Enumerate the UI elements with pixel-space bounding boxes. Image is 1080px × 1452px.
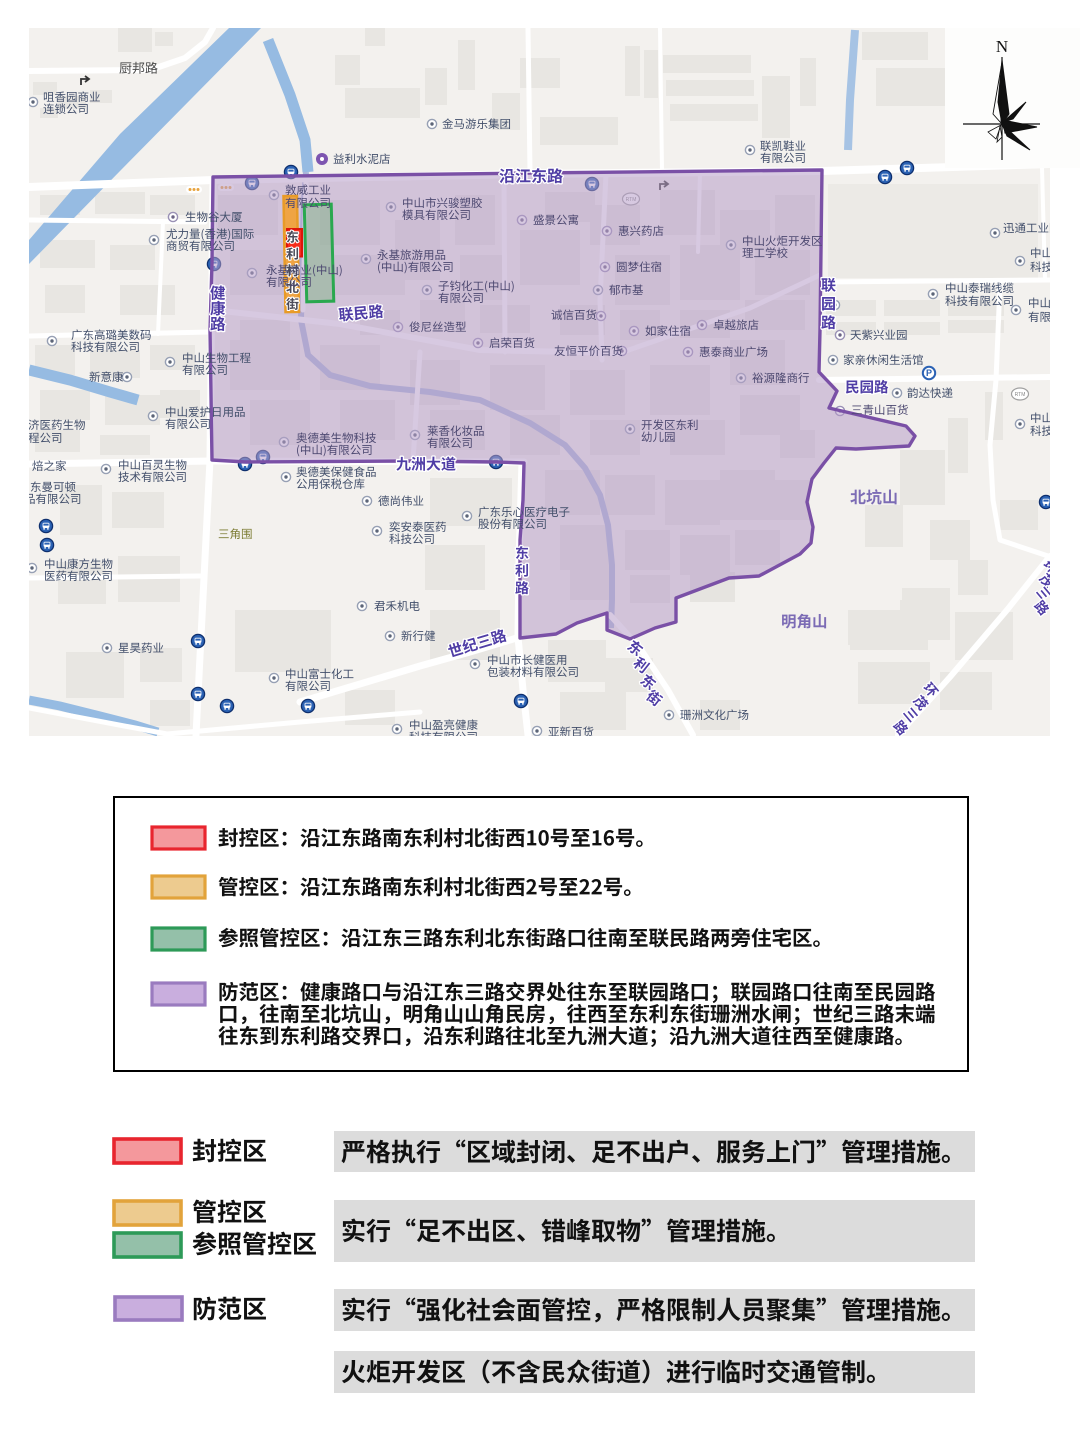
svg-text:N: N: [996, 37, 1008, 56]
svg-text:P: P: [926, 368, 932, 378]
svg-text:RTM: RTM: [1015, 392, 1026, 398]
